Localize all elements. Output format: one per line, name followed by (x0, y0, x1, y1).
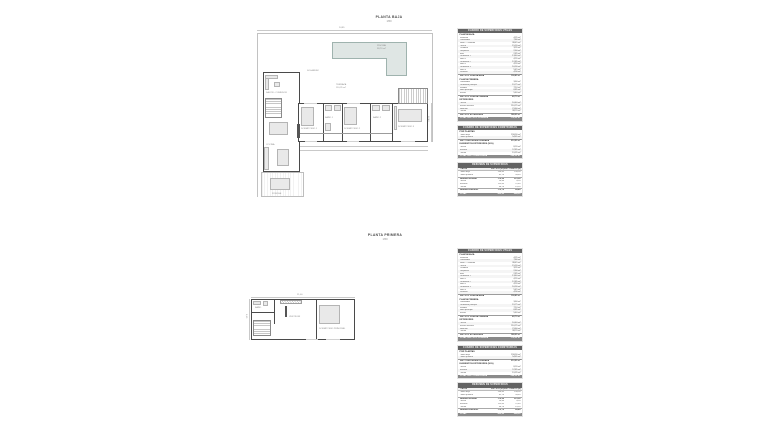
interior-wall (316, 299, 317, 340)
table-row: Subtotal exteriores170,7585,40 (458, 188, 522, 192)
subtotal-value: 42,70 m² (512, 96, 520, 99)
table-header: CUADRO DE SUPERFICIES CONSTRUIDAS (458, 346, 522, 350)
dimension-label-width: 24,85 (339, 27, 344, 30)
coffee-table-icon (274, 82, 280, 87)
subtotal-label: SUP. ÚTIL PLANTA PRIMERA (460, 316, 489, 319)
row-value-util: 38,70 (488, 186, 504, 189)
subtotal-value: 136,85 m² (511, 295, 520, 298)
planta-primera-title: PLANTA PRIMERA (346, 233, 424, 237)
table-header: CUADRO DE SUPERFICIES CONSTRUIDAS (458, 126, 522, 130)
row-label: Escalera (460, 71, 468, 74)
planta-primera-scale: 1/50 (346, 238, 424, 241)
table-subtotal-row: SUP. ÚTIL PLANTA BAJA136,85 m² (458, 294, 522, 298)
row-value: 4,90 m² (513, 71, 520, 74)
table-header: CUADRO DE SUPERFICIES ÚTILES (458, 249, 522, 253)
row-label: Piscina (460, 152, 467, 155)
interior-wall (342, 103, 343, 142)
bedroom2-label: DORMITORIO 2 (344, 128, 360, 131)
subtotal-value: 136,85 m² (511, 75, 520, 78)
interior-wall (323, 103, 324, 142)
exterior-stairs-hatch (398, 88, 428, 104)
row-value: 19,35 m² (512, 152, 520, 155)
bath-fixture-icon (253, 301, 261, 305)
table-subtotal-row: SUP. ÚTIL PLANTA BAJA136,85 m² (458, 74, 522, 78)
table-total-row: TOTAL SUP. CONSTRUIDA298,35 m² (458, 375, 522, 378)
dressing-label: VESTIDOR (289, 316, 300, 319)
row-value: 5,40 m² (513, 312, 520, 315)
living-room-label: SALÓN - COMEDOR (266, 92, 287, 95)
table-row: Planta primera42,7054,65 (458, 394, 522, 397)
total-value-constr: 298,35 (504, 193, 520, 196)
bath-fixture-icon (372, 105, 380, 111)
planta-primera-drawing: 21,00 9,10 BAÑO VESTIDOR DORMITORIO PRIN… (250, 296, 358, 344)
table-row: Piscina19,35 m² (458, 372, 522, 375)
table-row: Planta primera42,7054,65 (458, 174, 522, 177)
row-value: 4,90 m² (513, 291, 520, 294)
total-value-constr: 298,35 (504, 413, 520, 416)
window (401, 141, 415, 142)
pool-leg (386, 58, 407, 76)
row-value: 5,40 m² (513, 92, 520, 95)
plot-boundary-top (257, 33, 432, 34)
table-total-row: TOTAL350,30298,35 (458, 193, 522, 196)
subtotal-label: SUP. ÚTIL PLANTA BAJA (460, 75, 485, 78)
row-value: 38,70 m² (512, 330, 520, 333)
row-label: Planta primera (460, 356, 474, 359)
window (304, 103, 317, 104)
dimension-line-bottom-1 (298, 146, 428, 147)
row-label: Planta primera (460, 136, 474, 139)
row-label: Piscina (460, 110, 467, 113)
table-subtotal-row: SUP. ÚTIL PLANTA PRIMERA42,70 m² (458, 315, 522, 319)
plot-boundary-right (432, 33, 433, 142)
area-tables-top-group: CUADRO DE SUPERFICIES ÚTILESPLANTA BAJAV… (457, 28, 523, 200)
total-value: 298,35 m² (511, 375, 521, 378)
bed-icon (398, 109, 422, 122)
plan-sheet: PLANTA BAJA 1/50 24,85 12,40 PISCINA 38,… (0, 0, 770, 432)
terrace-area-label: 110,25 m² (336, 87, 346, 90)
chimney-wall (297, 124, 300, 138)
row-label: Subtotal exteriores (460, 409, 488, 412)
row-value-util: 170,75 (488, 189, 504, 192)
row-value: 19,35 m² (512, 372, 520, 375)
row-value: 38,70 m² (512, 110, 520, 113)
total-value: 179,55 m² (511, 337, 521, 340)
table-superficies-construidas: CUADRO DE SUPERFICIES CONSTRUIDASPOR PLA… (457, 345, 523, 380)
bath-fixture-icon (325, 105, 332, 111)
window (305, 141, 317, 142)
planta-baja-drawing: 24,85 12,40 PISCINA 38,70 m² SOLÁRIUM TE… (257, 28, 433, 200)
row-value-util: 42,70 (488, 174, 504, 177)
total-label: TOTAL SUP. CONSTRUIDA (460, 155, 488, 158)
porch-label: PORCHE (272, 193, 281, 196)
bath2-label: BAÑO 2 (373, 117, 381, 120)
dimension-line-top (251, 297, 355, 298)
table-row: Piscina38,7019,35 (458, 406, 522, 409)
total-value: 179,55 m² (511, 117, 521, 120)
bedroom3-label: DORMITORIO 3 (398, 126, 414, 129)
table-row: Piscina38,7019,35 (458, 186, 522, 189)
column-header: SUP. CONSTR. (m²) (504, 388, 520, 390)
stairs-hatch (265, 98, 282, 118)
area-tables-bottom-group: CUADRO DE SUPERFICIES ÚTILESPLANTA BAJAV… (457, 248, 523, 420)
wall-stub (285, 306, 287, 317)
row-label: Escalera (460, 291, 468, 294)
total-label: TOTAL SUP. CONSTRUIDA (460, 375, 488, 378)
bed-icon (301, 107, 314, 126)
outdoor-table-icon (270, 178, 290, 190)
wardrobe-icon (394, 106, 398, 130)
row-value: 54,65 m² (512, 356, 520, 359)
row-label: Piscina (460, 406, 488, 409)
column-header: SUP. ÚTIL (m²) (488, 388, 504, 390)
table-resumen-superficies: RESUMEN DE SUPERFICIESPLANTASUP. ÚTIL (m… (457, 382, 523, 417)
solarium-label: SOLÁRIUM (307, 70, 318, 73)
row-value-constr: 19,35 (504, 186, 520, 189)
row-value-util: 38,70 (488, 406, 504, 409)
table-superficies-utiles: CUADRO DE SUPERFICIES ÚTILESPLANTA BAJAV… (457, 28, 523, 122)
total-label: TOTAL SUP. ÚTIL VIVIENDA (460, 117, 489, 120)
table-superficies-construidas: CUADRO DE SUPERFICIES CONSTRUIDASPOR PLA… (457, 125, 523, 160)
table-total-row: TOTAL SUP. ÚTIL VIVIENDA179,55 m² (458, 117, 522, 120)
row-label: Planta primera (460, 174, 488, 177)
subtotal-label: SUP. ÚTIL PLANTA PRIMERA (460, 96, 489, 99)
subtotal-label: SUP. CONSTRUIDA CERRADA (460, 140, 490, 143)
dimension-label-width: 21,00 (297, 294, 302, 297)
dimension-line-bottom-2 (298, 150, 428, 151)
table-subtotal-row: SUP. CONSTRUIDA CERRADA212,95 m² (458, 359, 522, 363)
planta-baja-scale: 1/50 (350, 20, 428, 23)
subtotal-label: SUP. ÚTIL PLANTA BAJA (460, 295, 485, 298)
table-row: Piscina19,35 m² (458, 152, 522, 155)
table-total-row: TOTAL SUP. CONSTRUIDA298,35 m² (458, 155, 522, 158)
interior-wall (274, 299, 275, 324)
corridor-wall (300, 133, 392, 134)
table-superficies-utiles: CUADRO DE SUPERFICIES ÚTILESPLANTA BAJAV… (457, 248, 523, 342)
window (347, 141, 359, 142)
closet-hatch (280, 300, 302, 304)
subtotal-value: 42,70 m² (512, 316, 520, 319)
dimension-label-height: 9,10 (245, 314, 248, 318)
row-value-constr: 19,35 (504, 406, 520, 409)
total-value-util: 350,30 (488, 193, 504, 196)
bath-fixture-icon (382, 105, 390, 111)
row-value-util: 170,75 (488, 409, 504, 412)
stairs-hatch (253, 320, 271, 336)
dining-table-icon (269, 122, 288, 135)
table-total-row: TOTAL350,30298,35 (458, 413, 522, 416)
dimension-line-top (257, 30, 432, 31)
row-value-constr: 85,40 (504, 189, 520, 192)
table-header: CUADRO DE SUPERFICIES ÚTILES (458, 29, 522, 33)
sofa-icon (265, 75, 278, 79)
total-label: TOTAL (460, 413, 488, 416)
table-subtotal-row: SUP. CONSTRUIDA CERRADA212,95 m² (458, 139, 522, 143)
bath-fixture-icon (263, 301, 268, 306)
column-header: SUP. ÚTIL (m²) (488, 168, 504, 170)
column-header: PLANTA (460, 388, 488, 390)
row-value-constr: 85,40 (504, 409, 520, 412)
table-total-row: TOTAL SUP. ÚTIL VIVIENDA179,55 m² (458, 337, 522, 340)
bath-label: BAÑO (255, 307, 261, 310)
interior-wall (251, 312, 274, 313)
row-label: Terraza (460, 92, 467, 95)
bed-icon (344, 107, 357, 125)
row-value-constr: 54,65 (504, 394, 520, 397)
dimension-line-left (249, 299, 250, 340)
subtotal-label: SUP. ÚTIL EXTERIORES (460, 114, 484, 117)
row-label: Subtotal exteriores (460, 189, 488, 192)
column-header: PLANTA (460, 168, 488, 170)
pool-area-label: 38,70 m² (377, 48, 386, 51)
row-value-constr: 54,65 (504, 174, 520, 177)
window (326, 339, 340, 340)
column-header: SUP. CONSTR. (m²) (504, 168, 520, 170)
row-value: 54,65 m² (512, 136, 520, 139)
bath-fixture-icon (334, 105, 341, 111)
bedroom1-label: DORMITORIO 1 (301, 128, 317, 131)
total-value: 298,35 m² (511, 155, 521, 158)
kitchen-island-icon (277, 149, 289, 166)
row-label: Terraza (460, 312, 467, 315)
row-label: Planta primera (460, 394, 488, 397)
row-label: Piscina (460, 186, 488, 189)
row-label: Piscina (460, 330, 467, 333)
table-resumen-superficies: RESUMEN DE SUPERFICIESPLANTASUP. ÚTIL (m… (457, 162, 523, 197)
master-bedroom-label: DORMITORIO PRINCIPAL (319, 328, 345, 331)
plot-boundary-left (257, 33, 258, 197)
total-label: TOTAL (460, 193, 488, 196)
subtotal-label: SUP. ÚTIL EXTERIORES (460, 334, 484, 337)
table-row: Subtotal exteriores170,7585,40 (458, 408, 522, 412)
window (306, 339, 318, 340)
total-label: TOTAL SUP. ÚTIL VIVIENDA (460, 337, 489, 340)
bed-icon (319, 305, 340, 324)
planta-baja-title: PLANTA BAJA (350, 15, 428, 19)
table-subtotal-row: SUP. ÚTIL PLANTA PRIMERA42,70 m² (458, 95, 522, 99)
row-label: Piscina (460, 372, 467, 375)
bath-fixture-icon (325, 123, 331, 131)
subtotal-label: SUP. CONSTRUIDA CERRADA (460, 360, 490, 363)
row-value-util: 42,70 (488, 394, 504, 397)
interior-wall (370, 103, 371, 142)
subtotal-value: 212,95 m² (511, 360, 520, 363)
pool (332, 42, 407, 59)
window (347, 103, 360, 104)
total-value-util: 350,30 (488, 413, 504, 416)
bath1-label: BAÑO 1 (325, 117, 333, 120)
dimension-line-right (431, 103, 432, 142)
subtotal-value: 212,95 m² (511, 140, 520, 143)
kitchen-counter-icon (264, 147, 269, 170)
